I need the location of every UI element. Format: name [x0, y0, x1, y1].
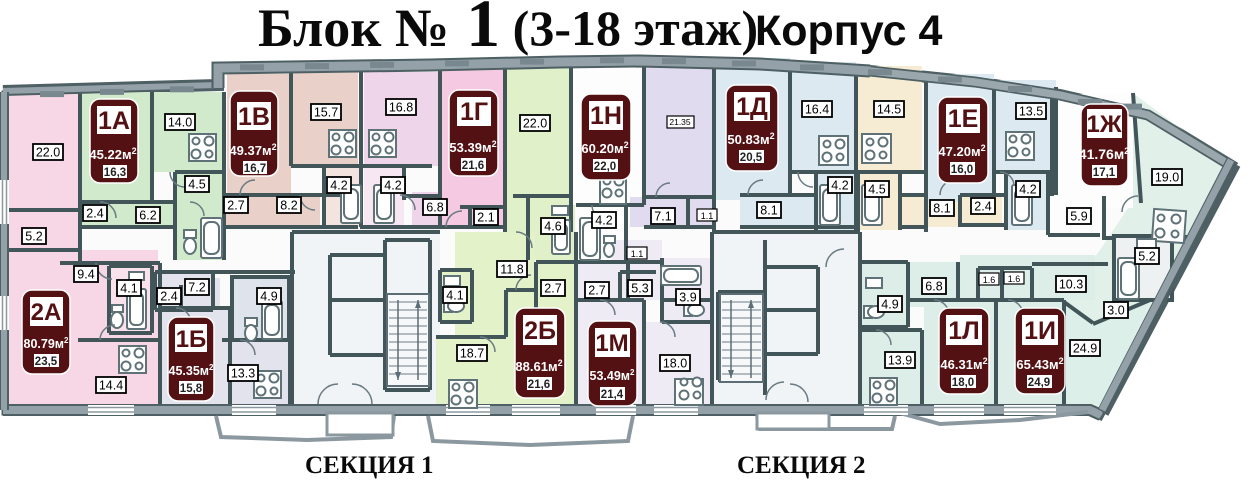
- svg-text:4.2: 4.2: [831, 179, 848, 193]
- svg-text:4.1: 4.1: [120, 282, 137, 296]
- svg-text:18.0: 18.0: [663, 357, 687, 371]
- svg-text:1Г: 1Г: [460, 98, 488, 126]
- svg-text:4.9: 4.9: [260, 290, 277, 304]
- svg-text:18.7: 18.7: [460, 347, 484, 361]
- svg-text:16.8: 16.8: [389, 101, 413, 115]
- svg-text:2.1: 2.1: [477, 211, 494, 225]
- svg-text:СЕКЦИЯ 2: СЕКЦИЯ 2: [737, 452, 866, 479]
- svg-text:2.4: 2.4: [86, 207, 103, 221]
- svg-text:80.79м2: 80.79м2: [24, 336, 70, 351]
- svg-text:4.5: 4.5: [188, 178, 205, 192]
- svg-text:21,6: 21,6: [528, 379, 550, 391]
- svg-text:1М: 1М: [595, 330, 628, 357]
- svg-text:1Е: 1Е: [948, 105, 979, 133]
- svg-text:СЕКЦИЯ 1: СЕКЦИЯ 1: [305, 452, 434, 479]
- svg-text:1.6: 1.6: [1008, 274, 1021, 284]
- svg-text:11.8: 11.8: [500, 263, 523, 277]
- svg-text:Блок № 1 (3-18 этаж): Блок № 1 (3-18 этаж): [258, 0, 758, 61]
- svg-text:1И: 1И: [1024, 317, 1056, 345]
- svg-text:9.4: 9.4: [77, 268, 94, 282]
- svg-text:23,5: 23,5: [35, 356, 58, 368]
- svg-text:3.9: 3.9: [679, 291, 696, 305]
- svg-text:1Б: 1Б: [176, 326, 207, 353]
- svg-text:5.9: 5.9: [1070, 210, 1087, 224]
- svg-text:2.7: 2.7: [588, 284, 605, 298]
- svg-text:19.0: 19.0: [1155, 171, 1179, 185]
- svg-text:4.9: 4.9: [881, 298, 898, 312]
- svg-text:13.9: 13.9: [888, 354, 912, 368]
- svg-text:1.1: 1.1: [701, 211, 714, 221]
- svg-text:1Ж: 1Ж: [1086, 111, 1121, 138]
- svg-text:65.43м2: 65.43м2: [1016, 356, 1063, 372]
- svg-text:4.2: 4.2: [1019, 183, 1036, 197]
- svg-text:16,0: 16,0: [951, 164, 973, 176]
- svg-text:14.5: 14.5: [877, 103, 901, 117]
- svg-text:10.3: 10.3: [1059, 278, 1083, 292]
- svg-text:1Д: 1Д: [736, 93, 768, 121]
- svg-text:50.83м2: 50.83м2: [727, 131, 774, 147]
- svg-text:22.0: 22.0: [36, 146, 60, 160]
- svg-text:22.0: 22.0: [523, 117, 547, 131]
- svg-text:5.2: 5.2: [1138, 250, 1155, 264]
- svg-text:24.9: 24.9: [1073, 342, 1097, 356]
- svg-text:5.3: 5.3: [631, 282, 648, 296]
- svg-text:2.4: 2.4: [974, 200, 991, 214]
- svg-text:13.5: 13.5: [1019, 105, 1043, 119]
- svg-text:Корпус 4: Корпус 4: [755, 7, 942, 55]
- svg-text:49.37м2: 49.37м2: [229, 142, 276, 158]
- svg-text:88.61м2: 88.61м2: [515, 358, 562, 374]
- svg-text:2.7: 2.7: [544, 282, 561, 296]
- svg-text:1А: 1А: [98, 107, 130, 135]
- svg-text:3.0: 3.0: [1107, 304, 1124, 318]
- svg-text:16,3: 16,3: [104, 167, 126, 179]
- svg-text:4.5: 4.5: [868, 183, 885, 197]
- svg-text:41.76м2: 41.76м2: [1079, 146, 1129, 162]
- svg-text:21,4: 21,4: [601, 389, 624, 401]
- svg-text:18,0: 18,0: [952, 377, 974, 389]
- svg-text:1В: 1В: [238, 103, 270, 131]
- svg-text:7.1: 7.1: [654, 210, 671, 224]
- svg-text:2А: 2А: [31, 299, 62, 326]
- svg-text:17,1: 17,1: [1093, 167, 1116, 179]
- svg-text:20,5: 20,5: [740, 152, 763, 164]
- svg-text:7.2: 7.2: [188, 281, 205, 295]
- svg-text:1Л: 1Л: [948, 317, 979, 345]
- svg-text:4.1: 4.1: [446, 289, 463, 303]
- svg-text:22,0: 22,0: [594, 161, 616, 173]
- svg-text:4.2: 4.2: [384, 179, 401, 193]
- svg-text:21,6: 21,6: [462, 160, 484, 172]
- svg-text:4.2: 4.2: [330, 179, 347, 193]
- svg-text:45.22м2: 45.22м2: [89, 146, 136, 162]
- svg-text:46.31м2: 46.31м2: [940, 356, 987, 372]
- svg-text:1Н: 1Н: [590, 102, 622, 130]
- svg-text:16.4: 16.4: [805, 103, 829, 117]
- svg-text:47.20м2: 47.20м2: [938, 143, 985, 159]
- svg-text:6.8: 6.8: [925, 280, 942, 294]
- svg-text:15.7: 15.7: [314, 106, 338, 120]
- svg-text:4.2: 4.2: [595, 214, 612, 228]
- svg-text:15,8: 15,8: [180, 383, 203, 395]
- svg-text:24,9: 24,9: [1028, 377, 1050, 389]
- svg-text:4.6: 4.6: [544, 220, 561, 234]
- svg-text:8.1: 8.1: [933, 202, 950, 216]
- svg-text:6.8: 6.8: [426, 201, 443, 215]
- svg-text:1.6: 1.6: [983, 275, 996, 285]
- svg-text:6.2: 6.2: [139, 209, 156, 223]
- svg-text:53.49м2: 53.49м2: [590, 368, 636, 383]
- svg-text:2.7: 2.7: [227, 199, 244, 213]
- svg-text:2Б: 2Б: [524, 317, 556, 345]
- svg-text:14.0: 14.0: [168, 116, 192, 130]
- svg-text:60.20м2: 60.20м2: [581, 140, 628, 156]
- svg-text:14.4: 14.4: [99, 379, 123, 393]
- svg-text:21.35: 21.35: [669, 117, 691, 127]
- svg-text:8.2: 8.2: [280, 199, 297, 213]
- svg-text:53.39м2: 53.39м2: [449, 139, 496, 155]
- svg-text:16,7: 16,7: [244, 163, 266, 175]
- svg-text:2.4: 2.4: [160, 290, 177, 304]
- svg-text:5.2: 5.2: [25, 230, 42, 244]
- svg-text:1.1: 1.1: [631, 249, 644, 259]
- svg-text:13.3: 13.3: [231, 367, 255, 381]
- svg-text:8.1: 8.1: [760, 204, 777, 218]
- svg-text:45.35м2: 45.35м2: [169, 363, 215, 378]
